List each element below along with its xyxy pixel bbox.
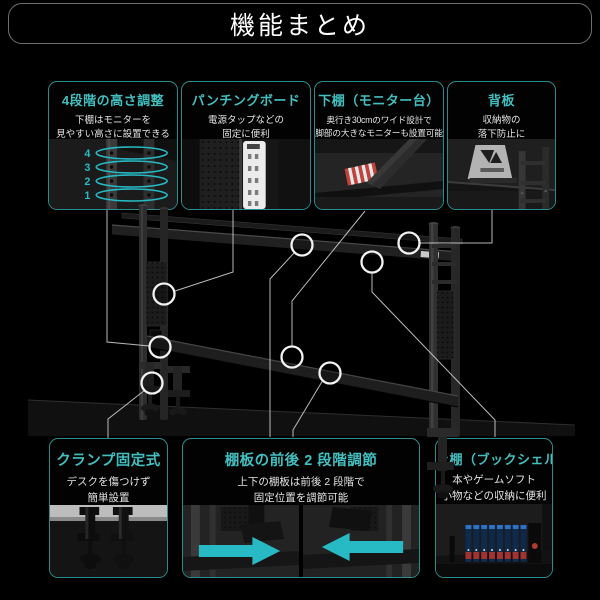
feature-desc-line: 上下の棚板は前後 2 段階で	[237, 476, 364, 488]
feature-title: クランプ固定式	[50, 449, 167, 470]
connector-back-panel	[420, 210, 492, 243]
page-title: 機能まとめ	[230, 6, 370, 42]
depth-adjust-photo	[183, 505, 419, 577]
feature-desc-line: 簡単設置	[88, 492, 130, 504]
right-frame	[429, 222, 461, 437]
feature-desc-line: 下棚はモニターを	[75, 115, 151, 126]
left-frame	[139, 204, 169, 420]
callout-circle-icon	[154, 284, 175, 305]
feature-summary-page: 機能まとめ 4段階の高さ調整 下棚はモニターを見やすい高さに設置できる	[0, 0, 600, 600]
small-stand-icon	[450, 536, 455, 562]
feature-title: 棚板の前後 2 段階調節	[183, 449, 419, 470]
callout-circle-icon	[399, 233, 420, 254]
upper-shelf-board	[112, 225, 460, 262]
power-strip-photo	[182, 139, 310, 209]
feature-desc: 奥行き30cmのワイド設計で脚部の大きなモニターも設置可能	[315, 114, 443, 140]
feature-desc-line: デスクを傷つけず	[67, 476, 151, 488]
svg-text:4: 4	[84, 148, 90, 160]
connector-lower-shelf	[292, 211, 365, 346]
connector-depth-lower	[293, 380, 323, 437]
svg-text:3: 3	[84, 162, 90, 174]
callout-circle-icon	[142, 373, 163, 394]
level-numbers: 4 3 2 1	[84, 148, 90, 202]
feature-desc-line: 本やゲームソフト	[452, 474, 536, 486]
connector-punching-board	[175, 210, 233, 291]
connector-height-adjustment	[107, 210, 149, 346]
page-header: 機能まとめ	[8, 3, 592, 44]
feature-card-clamp-mount: クランプ固定式 デスクを傷つけず簡単設置	[49, 438, 168, 578]
feature-card-lower-shelf: 下棚（モニター台） 奥行き30cmのワイド設計で脚部の大きなモニターも設置可能	[314, 81, 444, 210]
callout-circle-icon	[282, 347, 303, 368]
callout-circle-icon	[150, 337, 171, 358]
back-rail	[122, 213, 462, 244]
height-levels-photo: 4 3 2 1	[49, 139, 177, 209]
feature-title: 背板	[448, 90, 555, 109]
power-strip-icon	[243, 141, 266, 209]
depth-adjust-left-frame	[183, 505, 299, 577]
perforated-panel-left	[146, 262, 167, 326]
feature-desc-line: 収納物の	[482, 115, 520, 126]
callout-circle-icon	[292, 235, 313, 256]
svg-text:1: 1	[84, 190, 90, 202]
connector-upper-shelf	[372, 273, 495, 437]
feature-card-shelf-depth-adjust: 棚板の前後 2 段階調節 上下の棚板は前後 2 段階で固定位置を調節可能	[182, 438, 420, 578]
feature-desc-line: 固定位置を調節可能	[254, 492, 349, 504]
feature-card-back-panel: 背板 収納物の落下防止に	[447, 81, 556, 210]
callout-circle-icon	[320, 363, 341, 384]
feature-title: 上棚（ブックシェルフ）	[436, 449, 552, 468]
feature-desc-line: 小物などの収納に便利	[442, 490, 547, 502]
desk-surface	[28, 400, 575, 436]
feature-desc: 本やゲームソフト小物などの収納に便利	[436, 473, 552, 505]
feature-title: パンチングボード	[182, 90, 310, 109]
bookshelf-photo	[436, 504, 552, 577]
monitor-foot-photo	[315, 139, 443, 209]
feature-desc-line: 脚部の大きなモニターも設置可能	[315, 128, 442, 138]
depth-adjust-right-frame	[303, 505, 419, 577]
feature-desc-line: 電源タップなどの	[208, 115, 284, 126]
feature-card-upper-shelf: 上棚（ブックシェルフ） 本やゲームソフト小物などの収納に便利	[435, 438, 553, 578]
connector-clamp-mount	[108, 390, 145, 438]
perforated-panel-right	[437, 291, 454, 359]
feature-desc: デスクを傷つけず簡単設置	[50, 475, 167, 507]
feature-desc-line: 奥行き30cmのワイド設計で	[326, 115, 431, 125]
feature-title: 下棚（モニター台）	[315, 90, 443, 109]
brand-label	[421, 251, 439, 258]
svg-text:2: 2	[84, 176, 90, 188]
desk-clamp-icon	[168, 366, 190, 421]
feature-title: 4段階の高さ調整	[49, 90, 177, 109]
router-on-shelf-photo	[448, 139, 555, 209]
feature-card-punching-board: パンチングボード 電源タップなどの固定に便利	[181, 81, 311, 210]
feature-desc: 上下の棚板は前後 2 段階で固定位置を調節可能	[183, 475, 419, 507]
connector-depth-upper	[270, 253, 294, 437]
desk-clamp-icon	[140, 362, 162, 417]
lower-shelf-board	[147, 336, 458, 407]
callout-circle-icon	[362, 252, 383, 273]
feature-card-height-adjustment: 4段階の高さ調整 下棚はモニターを見やすい高さに設置できる 4 3	[48, 81, 178, 210]
clamps-photo	[50, 505, 167, 577]
